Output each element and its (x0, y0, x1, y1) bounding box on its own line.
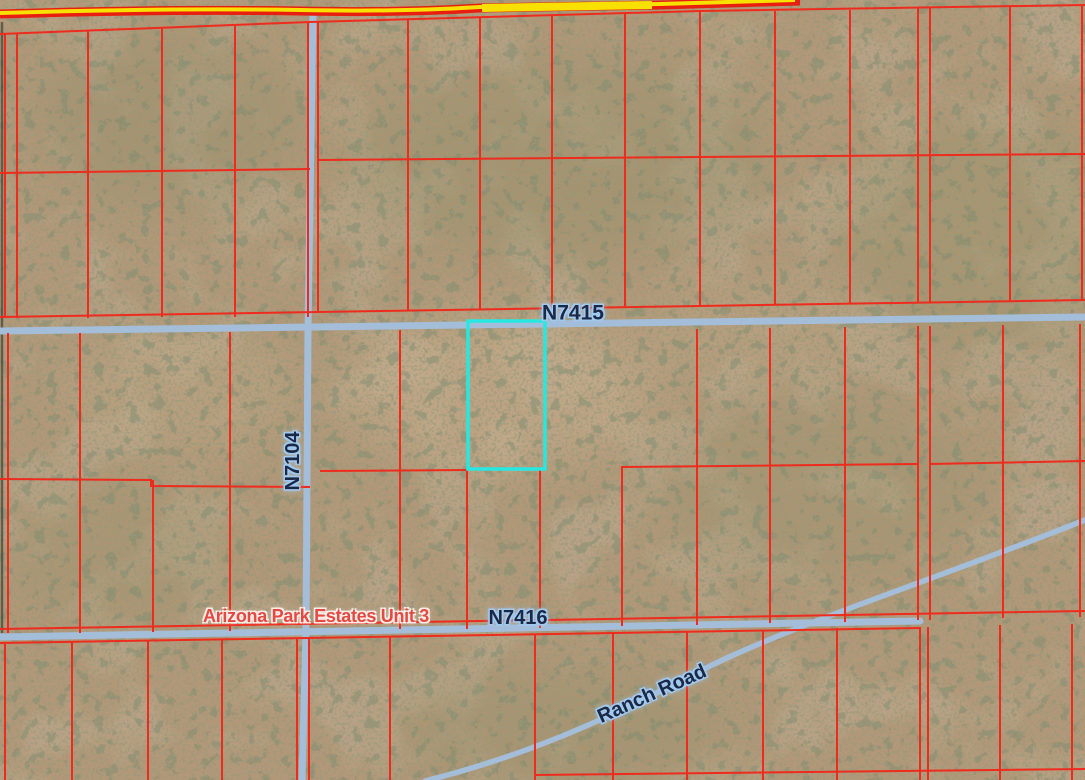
road-label-n7416: N7416 (489, 608, 548, 628)
road-label-n7104: N7104 (283, 432, 303, 491)
road-label-n7415: N7415 (542, 303, 604, 324)
subdivision-label: Arizona Park Estates Unit 3 (203, 607, 429, 625)
map-layers (0, 0, 1085, 780)
parcel-map-canvas[interactable]: N7415 N7104 N7416 Ranch Road Arizona Par… (0, 0, 1085, 780)
